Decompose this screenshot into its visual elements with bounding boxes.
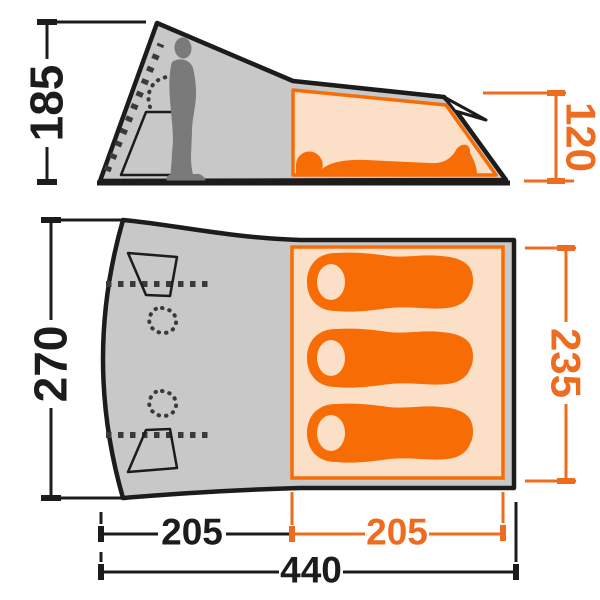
side-view: [97, 23, 510, 183]
dimension-cabin-height: 120: [483, 93, 600, 181]
dim-label-cabin-width: 205: [366, 512, 428, 553]
dim-label-tent-depth: 270: [25, 326, 77, 403]
dim-label-total-width: 440: [280, 550, 342, 591]
dim-label-cabin-length: 235: [543, 328, 590, 398]
dim-label-porch-width: 205: [161, 512, 223, 553]
dim-label-cabin-height: 120: [558, 102, 600, 172]
sleeping-bag-3: [307, 404, 473, 463]
person-feet: [166, 174, 205, 181]
sleeping-bag-1: [307, 253, 473, 312]
diagram-canvas: 185 120 270 235 205: [0, 0, 600, 600]
tent-dimensions-diagram: 185 120 270 235 205: [0, 0, 600, 600]
dim-label-standing-height: 185: [21, 65, 73, 142]
sleeping-bag-2: [307, 329, 473, 388]
plan-view: [103, 220, 514, 498]
dimension-porch-width: 205: [101, 512, 291, 553]
dimension-cabin-width: 205: [292, 492, 503, 553]
dimension-cabin-length: 235: [525, 248, 590, 481]
